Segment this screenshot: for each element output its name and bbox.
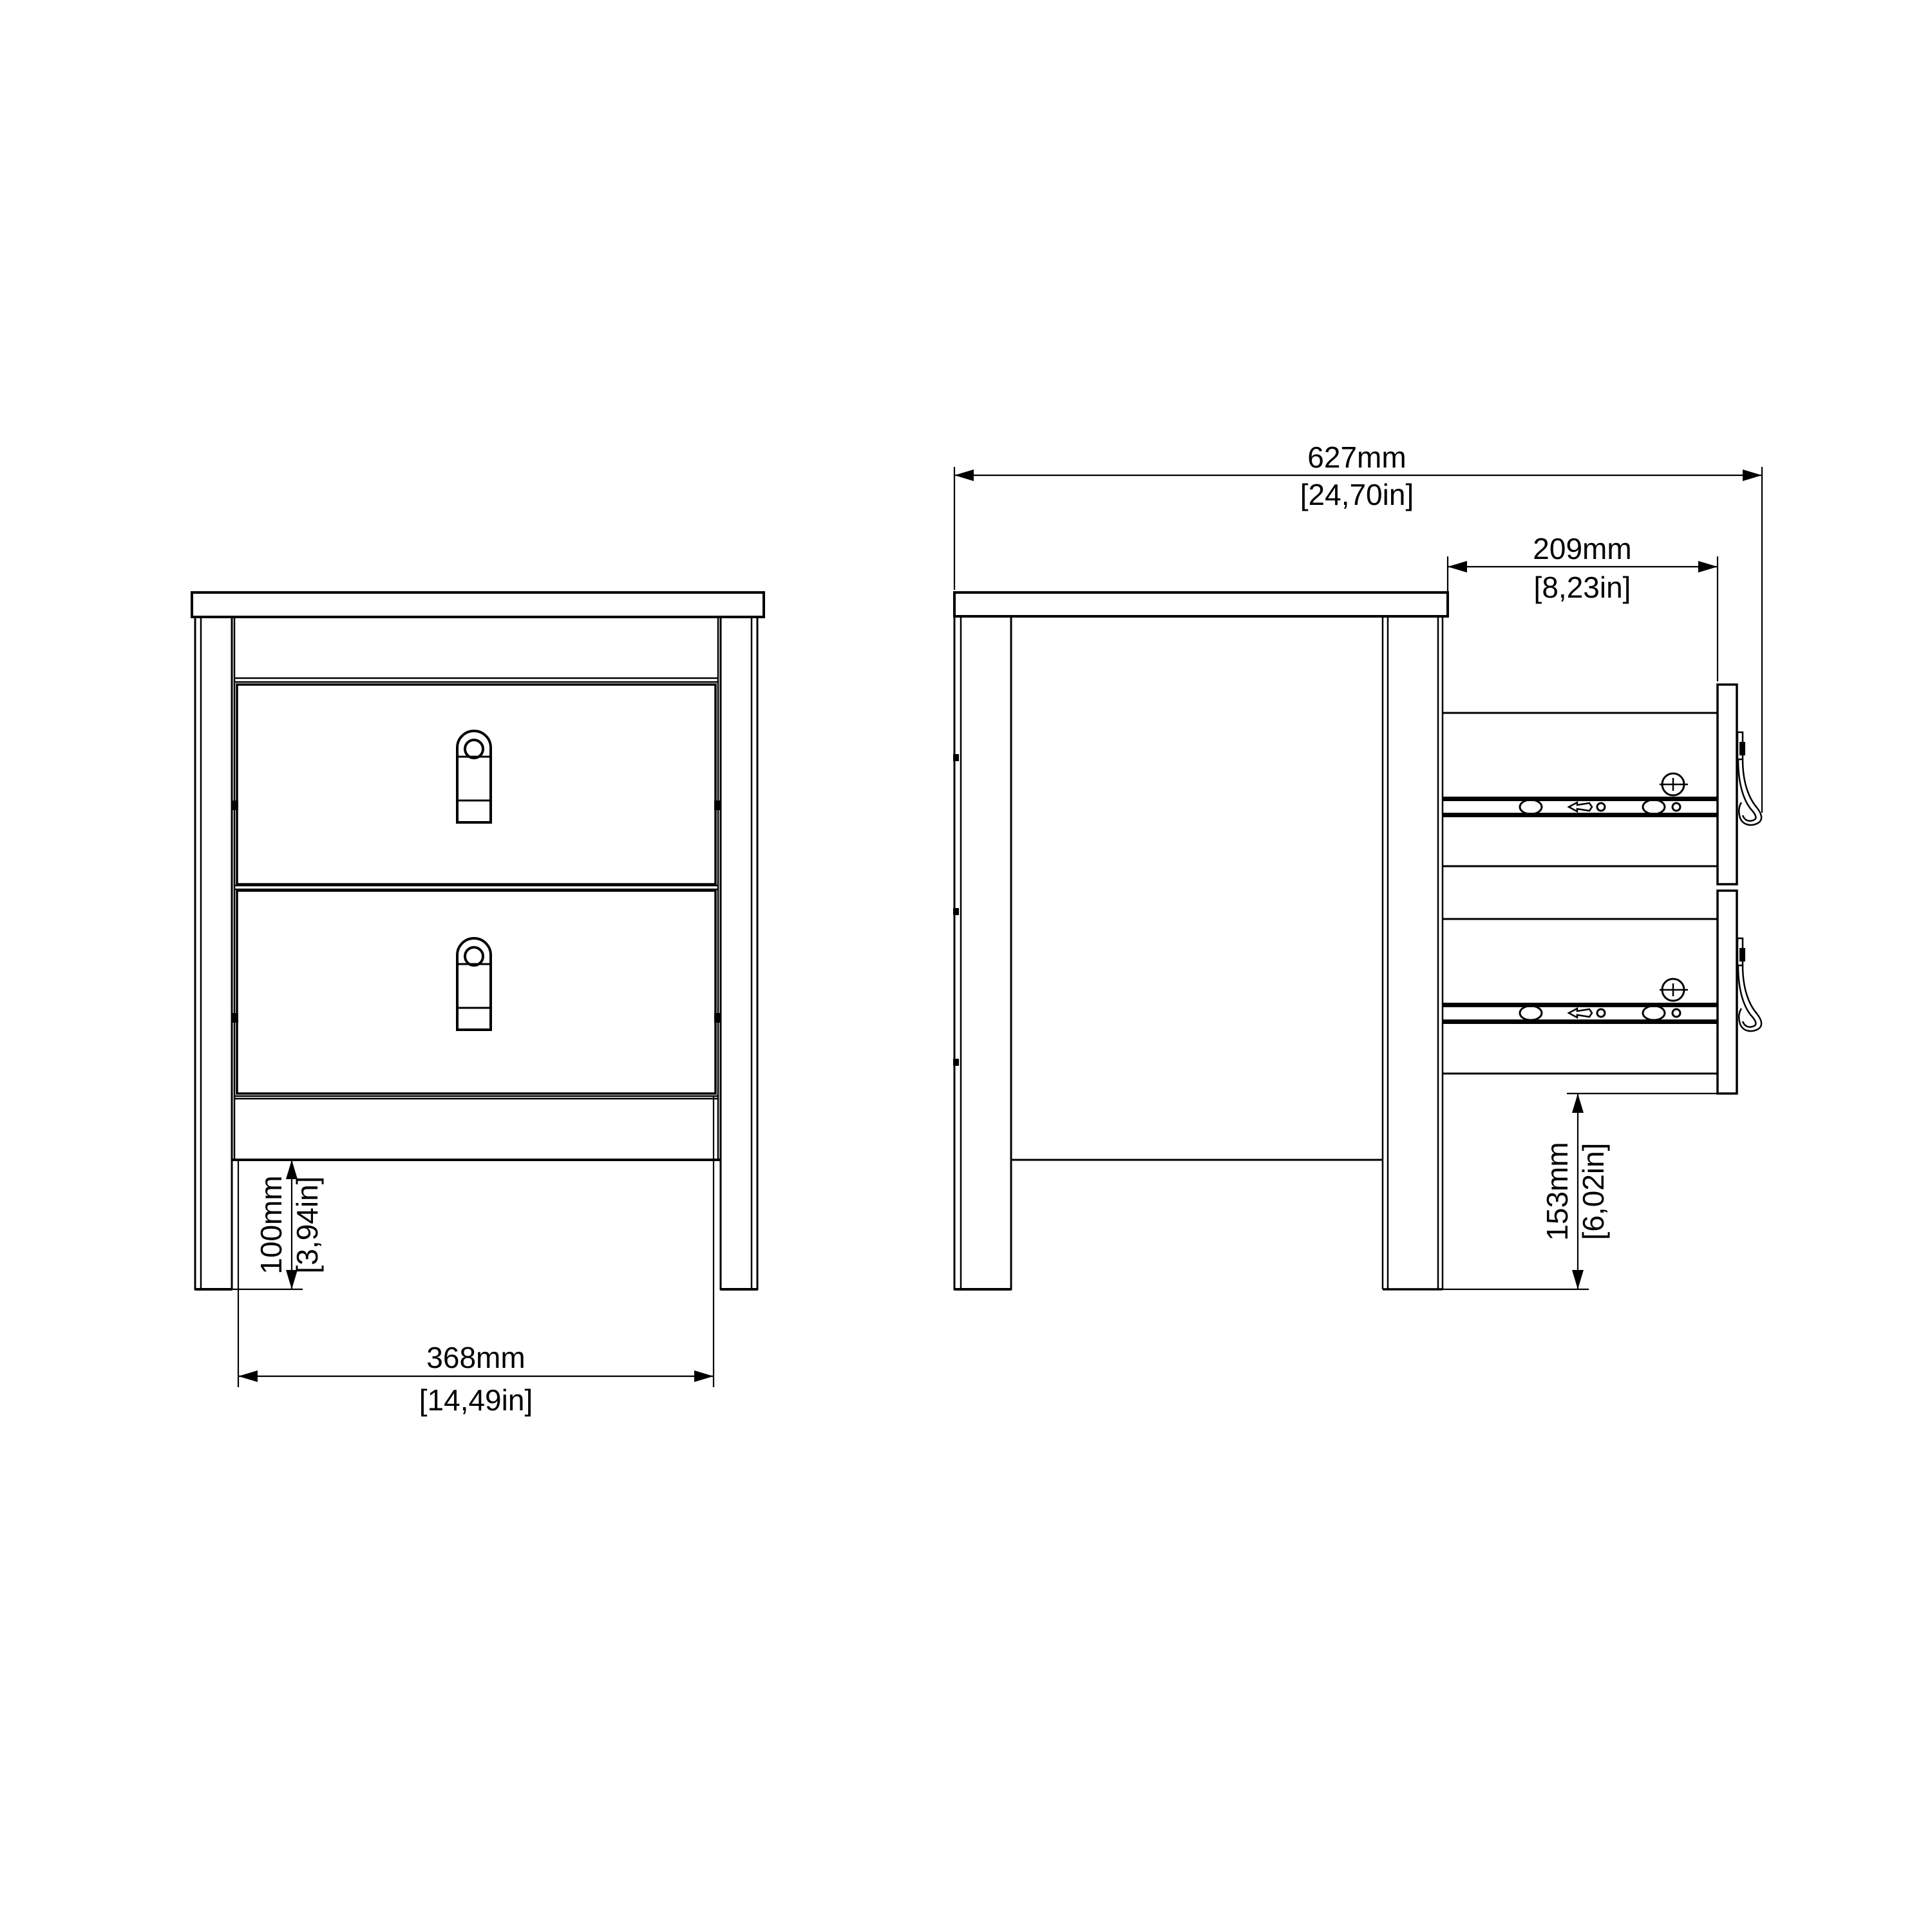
strap-2-screw: [1739, 948, 1745, 961]
dim-label-153-in: [6,02in]: [1577, 1143, 1610, 1240]
page-background: [0, 0, 1932, 1932]
strap-1-screw: [1739, 742, 1745, 755]
dim-label-209-mm: 209mm: [1533, 532, 1631, 565]
dim-label-627-mm: 627mm: [1307, 440, 1406, 474]
dim-label-627-in: [24,70in]: [1300, 478, 1414, 511]
dim-label-100-mm: 100mm: [254, 1175, 288, 1274]
dim-label-100-in: [3,94in]: [290, 1177, 324, 1274]
dim-label-368-mm: 368mm: [426, 1341, 525, 1374]
dim-label-368-in: [14,49in]: [419, 1383, 533, 1417]
drawing-canvas: 627mm [24,70in] 209mm [8,23in] 368mm [14…: [0, 0, 1932, 1932]
dim-label-153-mm: 153mm: [1540, 1142, 1574, 1240]
dim-label-209-in: [8,23in]: [1534, 571, 1631, 604]
